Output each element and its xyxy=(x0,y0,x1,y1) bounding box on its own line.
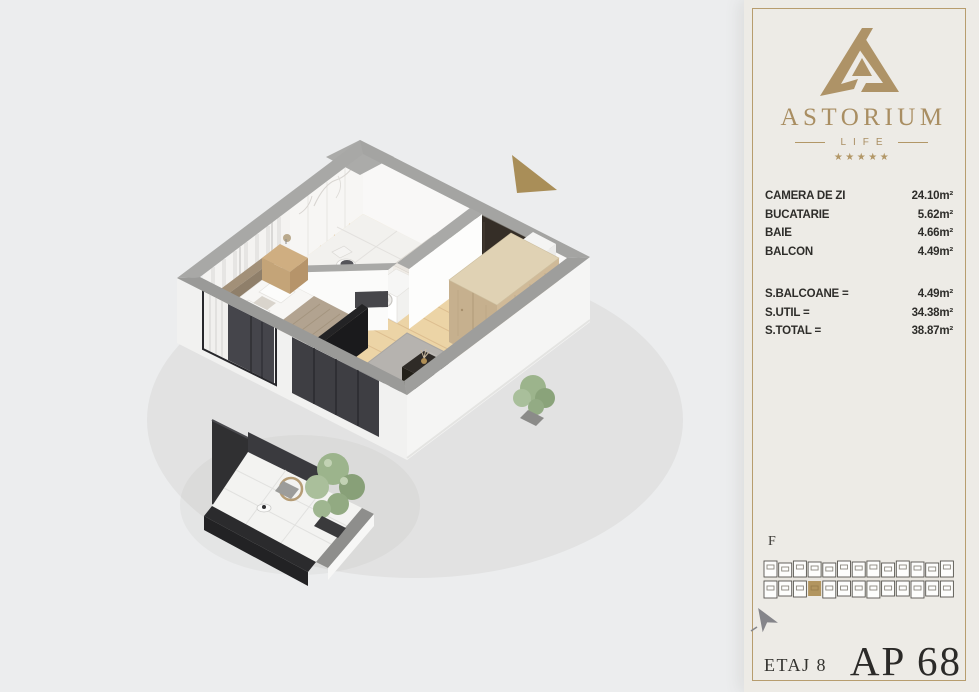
brand-name: ASTORIUM xyxy=(744,104,979,132)
brand-block: ASTORIUM LIFE ★★★★★ xyxy=(744,26,979,163)
panel-footer: ETAJ 8 AP 68 xyxy=(764,641,962,682)
total-row: S.UTIL = 34.38m² xyxy=(765,307,953,326)
room-row: BAIE 4.66m² xyxy=(765,227,953,246)
astorium-logo-icon xyxy=(817,26,907,98)
room-row: BALCON 4.49m² xyxy=(765,246,953,265)
total-row: S.BALCOANE = 4.49m² xyxy=(765,288,953,307)
apartment-number: AP 68 xyxy=(850,641,962,682)
five-stars-icon: ★★★★★ xyxy=(744,152,979,163)
north-arrow-icon xyxy=(748,602,782,636)
apartment-floorplan-render xyxy=(0,0,744,692)
room-row: BUCATARIE 5.62m² xyxy=(765,209,953,228)
surface-totals: S.BALCOANE = 4.49m² S.UTIL = 34.38m² S.T… xyxy=(765,288,953,344)
brochure-page: ASTORIUM LIFE ★★★★★ CAMERA DE ZI 24.10m²… xyxy=(0,0,979,692)
info-panel: ASTORIUM LIFE ★★★★★ CAMERA DE ZI 24.10m²… xyxy=(744,0,979,692)
floor-label: ETAJ 8 xyxy=(764,655,827,682)
direction-arrow-icon xyxy=(512,155,557,193)
rule-left xyxy=(795,142,825,144)
gold-vase-icon xyxy=(421,358,427,364)
brand-subtitle: LIFE xyxy=(744,137,979,148)
total-row: S.TOTAL = 38.87m² xyxy=(765,325,953,344)
block-label: F xyxy=(768,534,776,550)
dried-plant-icon xyxy=(283,234,291,242)
building-level-plan xyxy=(761,556,961,604)
wall-niche xyxy=(355,291,388,308)
floorplan-area xyxy=(0,0,744,692)
room-measurements: CAMERA DE ZI 24.10m² BUCATARIE 5.62m² BA… xyxy=(765,190,953,264)
room-row: CAMERA DE ZI 24.10m² xyxy=(765,190,953,209)
rule-right xyxy=(898,142,928,144)
